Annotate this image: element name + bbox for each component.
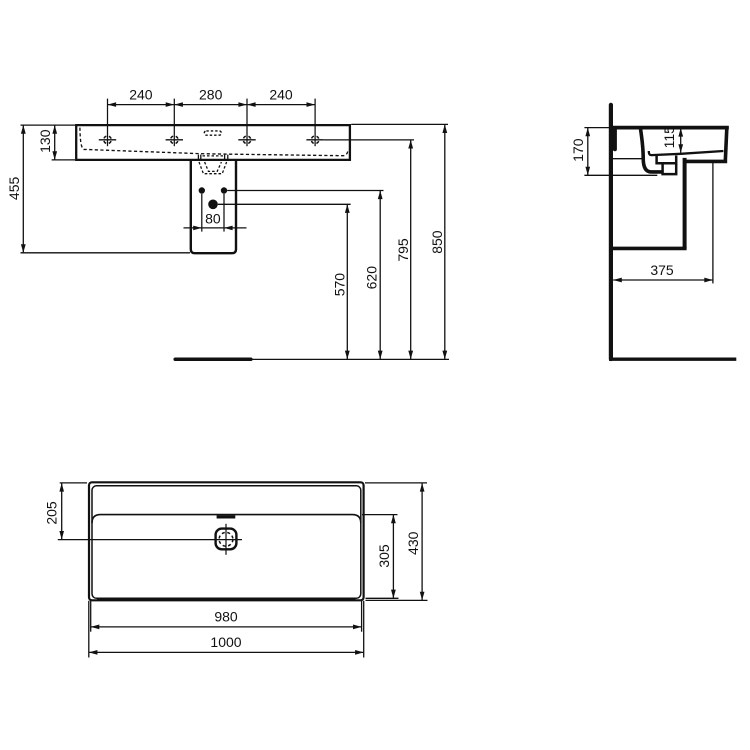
svg-text:240: 240 xyxy=(269,86,293,102)
svg-text:375: 375 xyxy=(650,262,674,278)
svg-text:430: 430 xyxy=(405,531,421,555)
svg-text:205: 205 xyxy=(43,501,59,525)
svg-text:115: 115 xyxy=(661,126,677,149)
svg-text:620: 620 xyxy=(364,266,380,290)
svg-text:280: 280 xyxy=(199,86,223,102)
svg-text:80: 80 xyxy=(205,210,221,226)
svg-text:795: 795 xyxy=(395,238,411,262)
svg-text:850: 850 xyxy=(429,230,445,254)
svg-text:305: 305 xyxy=(376,544,392,568)
svg-text:980: 980 xyxy=(214,608,238,624)
svg-text:1000: 1000 xyxy=(210,634,241,650)
svg-text:455: 455 xyxy=(6,177,22,201)
svg-text:170: 170 xyxy=(570,138,586,162)
svg-text:570: 570 xyxy=(332,273,348,297)
svg-text:130: 130 xyxy=(37,129,53,153)
svg-text:240: 240 xyxy=(129,86,153,102)
